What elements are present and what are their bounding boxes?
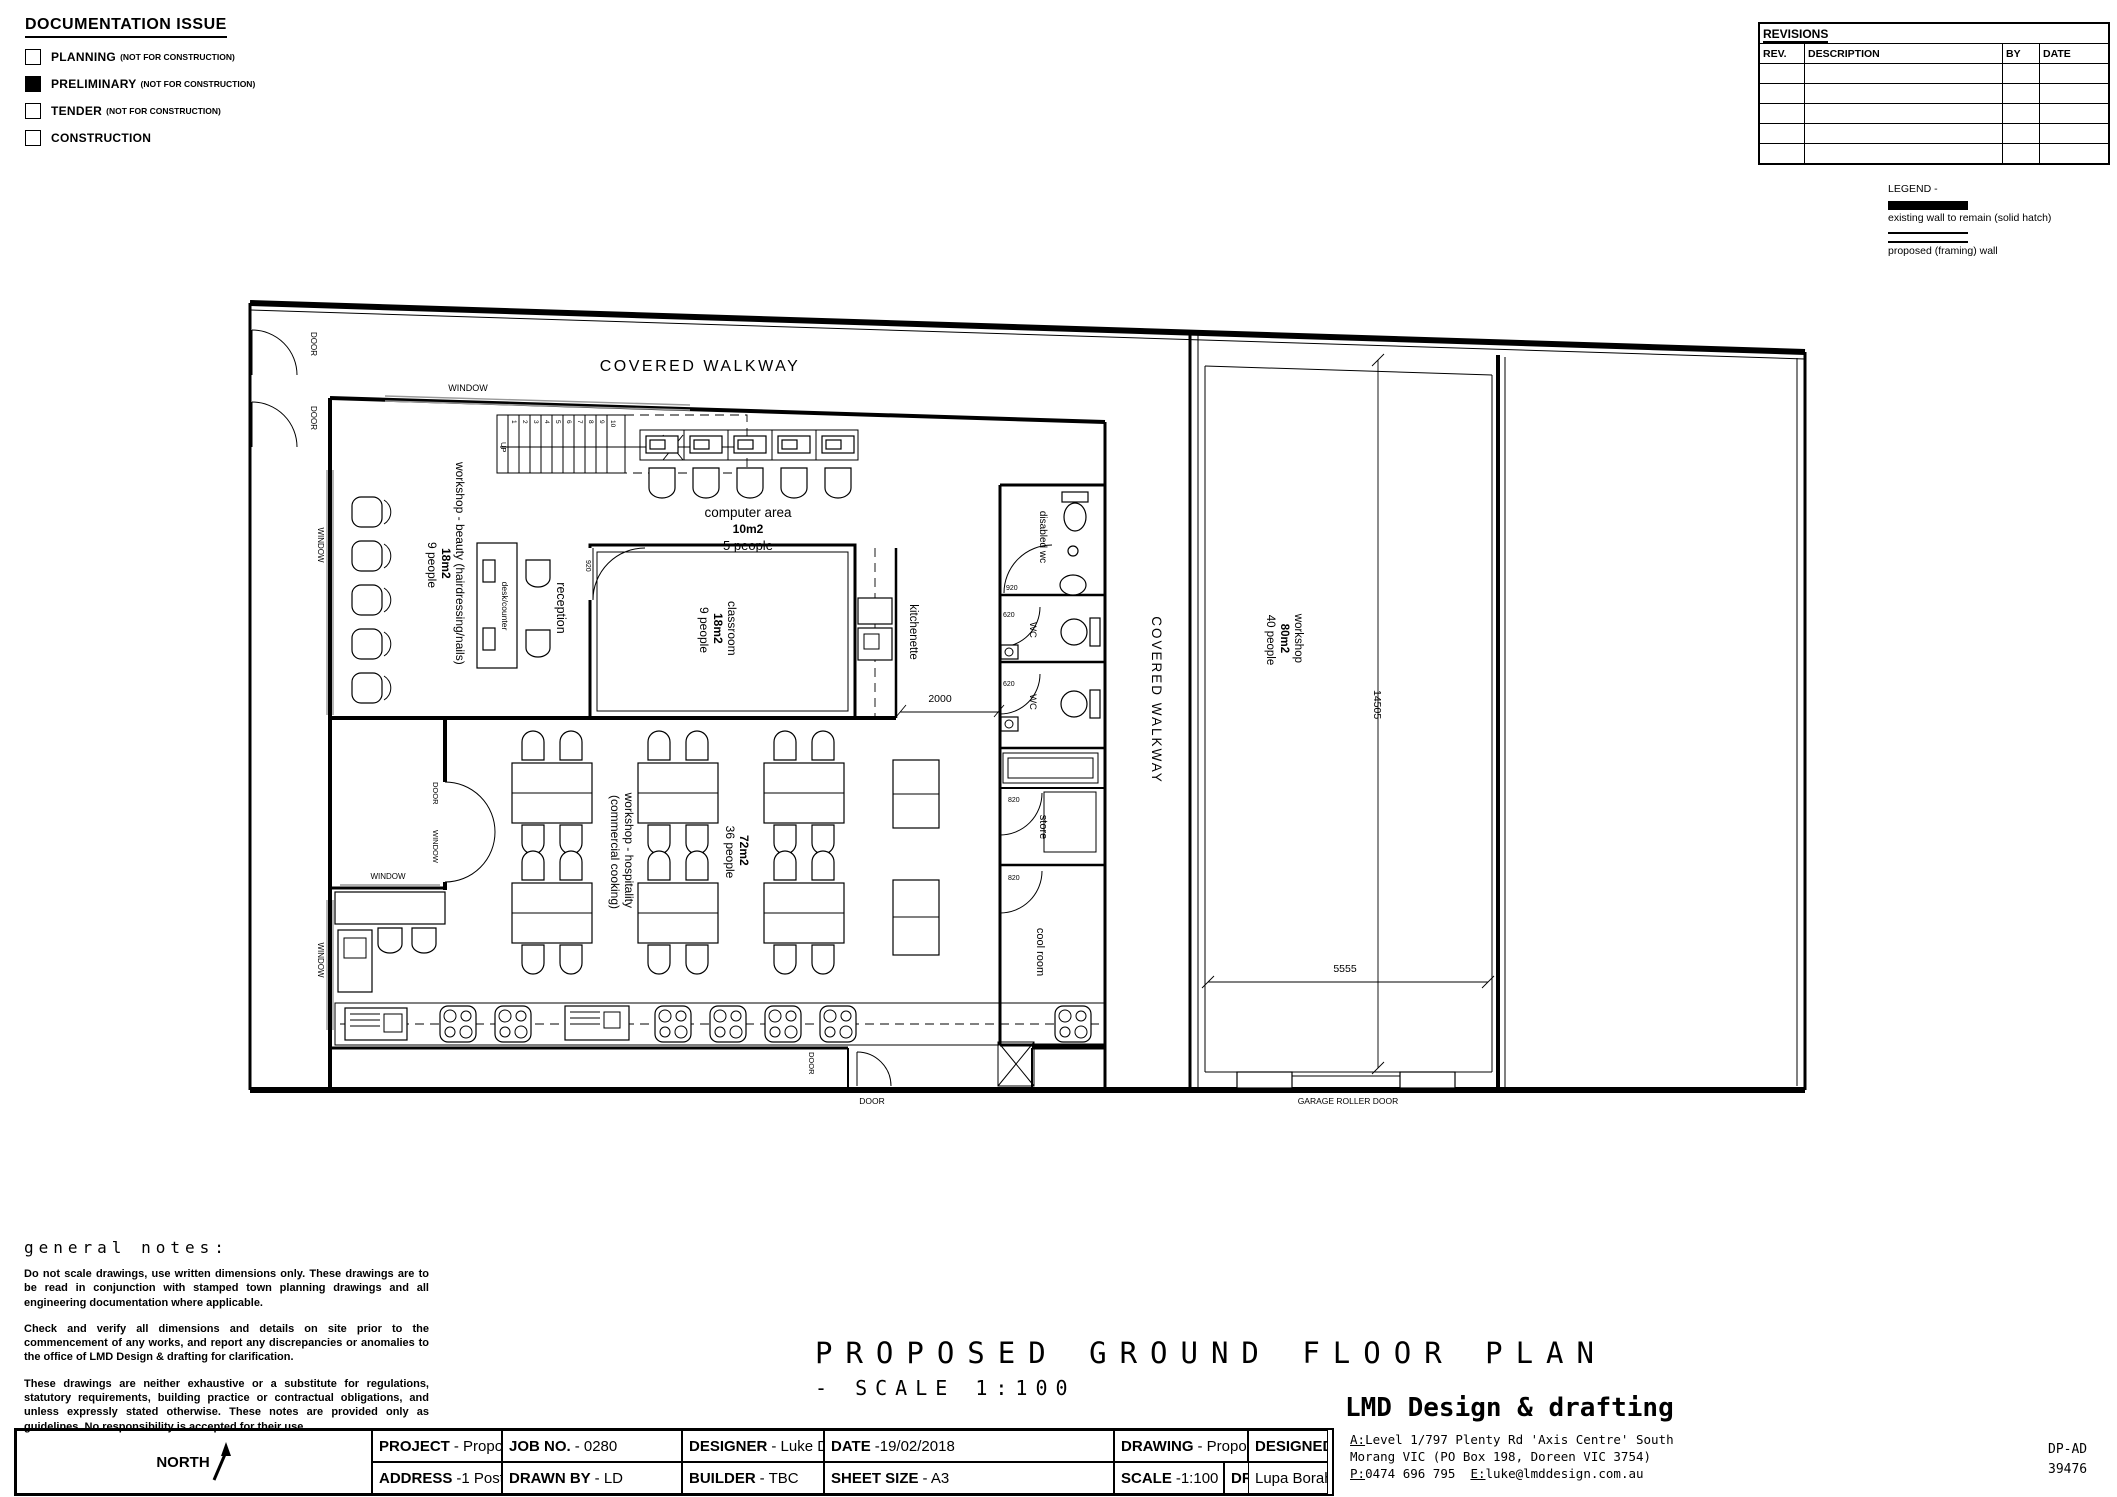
planning-checkbox: [25, 49, 41, 65]
workshop-hospitality-room: DOOR WINDOW WINDOW: [330, 718, 1105, 1045]
date-col-header: DATE: [2040, 44, 2110, 64]
rev-col-header: REV.: [1759, 44, 1805, 64]
stair-number: 9: [598, 420, 605, 424]
disabled-wc-label: disabled wc: [1037, 511, 1048, 563]
scale-drawingno-cells: SCALE-1:100 DRAWING NO.- SK01: [1114, 1462, 1248, 1494]
toilet-bowl: [1061, 691, 1087, 717]
door-size-label: 820: [1008, 875, 1020, 882]
computer-area-size: 10m2: [733, 522, 764, 536]
dim-14505-label: 14505: [1371, 690, 1383, 719]
counter: [335, 892, 445, 924]
cooktop: [495, 1006, 531, 1042]
firm-reg-line: DP-AD: [2048, 1440, 2087, 1460]
table-group: [893, 760, 939, 828]
cool-room-door-swing: [1000, 871, 1042, 913]
reception-chair: [526, 560, 550, 587]
door-label: DOOR: [859, 1096, 885, 1106]
job-no-cell: JOB NO.- 0280: [502, 1430, 682, 1462]
store-shelving: [1044, 792, 1096, 852]
door-label: DOOR: [309, 406, 318, 430]
stair-number: 8: [587, 420, 594, 424]
notes-paragraph: Check and verify all dimensions and deta…: [24, 1322, 429, 1365]
cooking-bench: [335, 1003, 1105, 1045]
construction-label: CONSTRUCTION: [51, 131, 151, 145]
door-label: DOOR: [431, 782, 440, 805]
table-group: [638, 731, 718, 854]
hospitality-size-label: 72m2 36 people: [723, 826, 751, 879]
legend-existing-label: existing wall to remain (solid hatch): [1888, 212, 2117, 224]
table-group: [512, 851, 592, 974]
issue-row-tender: TENDER (NOT FOR CONSTRUCTION): [25, 103, 355, 119]
cooktop: [710, 1006, 746, 1042]
builder-cell: BUILDER- TBC: [682, 1462, 824, 1494]
revisions-empty-row: [1759, 144, 2109, 165]
table-group: [638, 851, 718, 974]
wc-block: 920 disabled wc 620 WC 620 WC 820: [1000, 485, 1105, 1045]
firm-name: LMD Design & drafting: [1345, 1393, 1674, 1423]
preliminary-checkbox: [25, 76, 41, 92]
stair-number: 3: [532, 420, 539, 424]
covered-walkway-top-label: COVERED WALKWAY: [600, 358, 800, 375]
exit-door-swing: [857, 1052, 891, 1086]
dim-5555-label: 5555: [1333, 963, 1357, 975]
description-col-header: DESCRIPTION: [1805, 44, 2003, 64]
revisions-empty-row: [1759, 84, 2109, 104]
window-label: WINDOW: [316, 942, 325, 978]
revisions-empty-row: [1759, 104, 2109, 124]
project-cell: PROJECT- Proposed Educational Facility: [372, 1430, 502, 1462]
kitchenette-area: kitchenette: [858, 548, 919, 718]
stair-above-cutline: [625, 415, 747, 473]
toilet-cistern: [1062, 492, 1088, 502]
door-label: DOOR: [807, 1052, 816, 1075]
top-boundary-inner: [250, 310, 1805, 359]
wc-label: WC: [1027, 622, 1038, 638]
double-door-leaf-swing: [445, 832, 495, 882]
table-group: [764, 851, 844, 974]
table-group: [893, 880, 939, 955]
garage-roller-door-label: GARAGE ROLLER DOOR: [1298, 1096, 1399, 1106]
wc-room: 620 WC: [1000, 674, 1100, 731]
garage-jamb: [1237, 1072, 1292, 1088]
existing-wall-swatch: [1888, 201, 1968, 210]
kitchenette-sink: [858, 628, 892, 660]
cooktop: [655, 1006, 691, 1042]
wc-label: WC: [1027, 694, 1038, 710]
basin: [1060, 575, 1086, 595]
appliance: [338, 930, 372, 992]
window-label: WINDOW: [431, 830, 440, 864]
window-label: WINDOW: [316, 527, 325, 563]
bench-sink: [345, 1008, 407, 1040]
door-size-label: 920: [584, 560, 591, 572]
issue-row-planning: PLANNING (NOT FOR CONSTRUCTION): [25, 49, 355, 65]
preliminary-label: PRELIMINARY: [51, 77, 137, 91]
dim-5555: 5555: [1202, 963, 1494, 988]
bench-sink: [565, 1006, 629, 1040]
wc-room: 620 WC: [1000, 607, 1100, 659]
computer-area-label: computer area: [704, 505, 792, 520]
title-block: PROJECT- Proposed Educational Facility J…: [14, 1428, 1334, 1496]
tender-note: (NOT FOR CONSTRUCTION): [106, 106, 221, 116]
computer-station: [646, 436, 854, 453]
stair-outline: [497, 415, 625, 473]
reception-chair: [526, 630, 550, 657]
designer-cell: DESIGNER- Luke Drakes: [682, 1430, 824, 1462]
door-label: DOOR: [309, 332, 318, 356]
revisions-header-row: REV. DESCRIPTION BY DATE: [1759, 44, 2109, 64]
cooktop: [765, 1006, 801, 1042]
stair-number: 1: [510, 420, 517, 424]
double-door-leaf-swing: [445, 782, 495, 832]
north-label: NORTH: [156, 1454, 209, 1471]
computer-chairs: [649, 468, 851, 498]
stair-number: 5: [554, 420, 561, 424]
workshop-top-line: [1205, 366, 1492, 375]
basin: [1001, 717, 1018, 731]
workshop-beauty-room: workshop - beauty (hairdressing/nails) 1…: [352, 461, 467, 703]
window-hatch: [385, 401, 690, 410]
stair-number: 2: [521, 420, 528, 424]
door-size-label: 820: [1008, 797, 1020, 804]
stair-number: 7: [576, 420, 583, 424]
firm-address-line: A:Level 1/797 Plenty Rd 'Axis Centre' So…: [1350, 1432, 1910, 1449]
classroom-door-opening: [588, 548, 593, 600]
issue-row-preliminary: PRELIMINARY (NOT FOR CONSTRUCTION): [25, 76, 355, 92]
table-group: [512, 731, 592, 854]
firm-registration: DP-AD 39476: [2048, 1440, 2087, 1479]
workshop-80-room: workshop 80m2 40 people 14505 5555 GARAG…: [1202, 354, 1505, 1106]
garage-jamb: [1400, 1072, 1455, 1088]
construction-checkbox: [25, 130, 41, 146]
cooktop: [440, 1006, 476, 1042]
entry-door-swing: [252, 330, 297, 375]
top-boundary-wall: [250, 303, 1805, 352]
beauty-chairs: [352, 497, 391, 703]
reception-label: reception: [554, 582, 568, 633]
door-size-label: 620: [1003, 612, 1015, 619]
entry-door-swing: [252, 402, 297, 447]
revisions-title: REVISIONS: [1759, 23, 2109, 44]
notes-paragraph: Do not scale drawings, use written dimen…: [24, 1267, 429, 1310]
firm-address-line: Morang VIC (PO Box 198, Doreen VIC 3754): [1350, 1449, 1910, 1466]
north-indicator: NORTH: [16, 1430, 372, 1494]
toilet-bowl: [1061, 619, 1087, 645]
floor-waste: [1068, 546, 1078, 556]
beauty-room-label: workshop - beauty (hairdressing/nails) 1…: [425, 461, 467, 668]
store-label: store: [1037, 815, 1049, 839]
table-group: [764, 731, 844, 854]
workshop-80-label: workshop 80m2 40 people: [1264, 613, 1304, 666]
window-label: WINDOW: [448, 383, 488, 393]
legend-panel: LEGEND - existing wall to remain (solid …: [1888, 183, 2117, 257]
computer-area: computer area 10m2 5 people: [640, 430, 858, 553]
window-label: WINDOW: [370, 872, 406, 881]
dim-2000-label: 2000: [928, 693, 952, 705]
drawing-no-cell: DRAWING NO.- SK01: [1224, 1462, 1248, 1494]
toilet-cistern: [1090, 618, 1100, 646]
kitchenette-unit: [858, 598, 892, 624]
legend-proposed-label: proposed (framing) wall: [1888, 245, 2117, 257]
firm-address: A:Level 1/797 Plenty Rd 'Axis Centre' So…: [1350, 1432, 1910, 1483]
firm-reg-line: 39476: [2048, 1460, 2087, 1480]
date-cell: DATE-19/02/2018: [824, 1430, 1114, 1462]
designed-for-name-cell: Lupa Borah: [1248, 1462, 1328, 1494]
dim-14505: 14505: [1371, 354, 1384, 1074]
hospitality-label: workshop - hospitality (commercial cooki…: [608, 792, 636, 912]
designed-for-cell: DESIGNED FOR -: [1248, 1430, 1328, 1462]
general-notes: general notes: Do not scale drawings, us…: [24, 1238, 429, 1446]
drawing-title-main: PROPOSED GROUND FLOOR PLAN: [815, 1336, 1607, 1370]
door-size-label: 920: [1006, 585, 1018, 592]
kitchenette-label: kitchenette: [907, 604, 919, 660]
cooktop: [820, 1006, 856, 1042]
toilet-cistern: [1090, 690, 1100, 718]
issue-row-construction: CONSTRUCTION: [25, 130, 355, 146]
stair-number: 10: [609, 420, 616, 428]
firm-contact-line: P:0474 696 795 E:luke@lmddesign.com.au: [1350, 1466, 1910, 1483]
sheet-size-cell: SHEET SIZE- A3: [824, 1462, 1114, 1494]
general-notes-title: general notes:: [24, 1238, 429, 1257]
classroom-label: classroom 18m2 9 people: [697, 601, 739, 659]
by-col-header: BY: [2003, 44, 2040, 64]
exit-vestibule: DOOR DOOR: [330, 1042, 1105, 1106]
documentation-issue-title: DOCUMENTATION ISSUE: [25, 16, 227, 38]
store-room: 820 store: [1000, 792, 1096, 852]
shelf-bench-inner: [1008, 758, 1093, 778]
notes-paragraph: These drawings are neither exhaustive or…: [24, 1377, 429, 1434]
chair: [412, 928, 436, 953]
classroom-door-swing: [593, 548, 645, 600]
building-face-wall: [330, 398, 1105, 422]
legend-title: LEGEND -: [1888, 183, 2117, 195]
tender-checkbox: [25, 103, 41, 119]
stair-number: 4: [543, 420, 550, 424]
planning-label: PLANNING: [51, 50, 116, 64]
cool-room: 820 cool room: [1000, 871, 1046, 976]
chair: [378, 928, 402, 953]
planning-note: (NOT FOR CONSTRUCTION): [120, 52, 235, 62]
proposed-wall-swatch: [1888, 232, 1968, 243]
drawing-title: PROPOSED GROUND FLOOR PLAN - SCALE 1:100: [815, 1336, 1607, 1400]
toilet-bowl: [1064, 503, 1086, 531]
door-size-label: 620: [1003, 681, 1015, 688]
drawing-name-cell: DRAWING- Proposed Ground Floor Plan: [1114, 1430, 1248, 1462]
revisions-table: REVISIONS REV. DESCRIPTION BY DATE: [1758, 22, 2110, 165]
documentation-issue-panel: DOCUMENTATION ISSUE PLANNING (NOT FOR CO…: [25, 16, 355, 146]
drawn-by-cell: DRAWN BY- LD: [502, 1462, 682, 1494]
revisions-empty-row: [1759, 64, 2109, 84]
scale-cell: SCALE-1:100: [1114, 1462, 1224, 1494]
preliminary-note: (NOT FOR CONSTRUCTION): [141, 79, 256, 89]
classroom-room: 920 classroom 18m2 9 people: [584, 545, 855, 718]
store-door-swing: [1000, 793, 1042, 835]
revisions-empty-row: [1759, 124, 2109, 144]
floor-plan: COVERED WALKWAY DOOR DOOR WINDOW WINDOW …: [225, 285, 1865, 1135]
north-arrow-icon: [210, 1442, 232, 1482]
stair-number: 6: [565, 420, 572, 424]
disabled-wc-room: 920 disabled wc: [1004, 492, 1088, 595]
desk-counter-label: desk/counter: [500, 582, 510, 631]
basin: [1001, 645, 1018, 659]
tender-label: TENDER: [51, 104, 102, 118]
cool-room-label: cool room: [1034, 928, 1046, 976]
cooktop: [1055, 1006, 1091, 1042]
reception-area: desk/counter reception: [477, 543, 568, 668]
address-cell: ADDRESS-1 Post Office Place, Glenroy VIC: [372, 1462, 502, 1494]
dim-2000: 2000: [896, 693, 1004, 717]
covered-walkway-right-label: COVERED WALKWAY: [1149, 616, 1164, 784]
